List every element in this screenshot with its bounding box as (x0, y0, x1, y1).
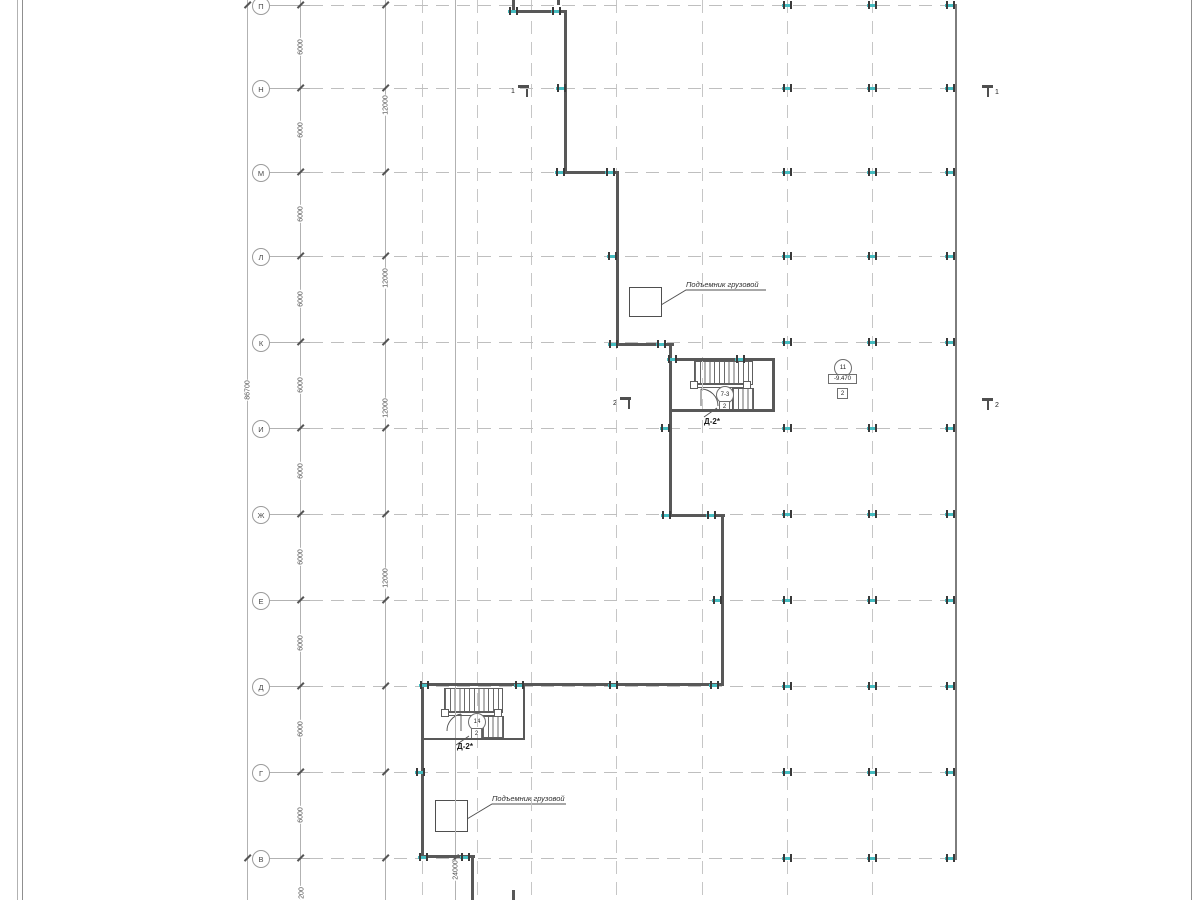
stair-upper-post (690, 381, 698, 389)
axis-tick (783, 338, 785, 346)
dimension-label-6000: 6000 (298, 205, 305, 223)
wall-tick (662, 511, 664, 519)
axis-bubble: Е (252, 592, 270, 610)
axis-tick (875, 682, 877, 690)
axis-tick (790, 338, 792, 346)
wall-tick (710, 681, 712, 689)
grid-axis-line (310, 428, 956, 429)
axis-tick (946, 854, 948, 862)
hoist-lower-leader (467, 804, 566, 819)
wall-segment (669, 358, 775, 361)
stair-upper-landing-edge (692, 383, 747, 384)
wall-tick (608, 252, 610, 260)
wall-tick (509, 7, 511, 15)
wall-tick (419, 853, 421, 861)
axis-bubble: В (252, 850, 270, 868)
axis-bubble: К (252, 334, 270, 352)
dimension-label-24000: 24000 (453, 859, 460, 880)
dimension-label-total: 86700 (245, 379, 252, 400)
wall-segment (557, 0, 560, 5)
axis-tick (868, 854, 870, 862)
axis-bubble: Ж (252, 506, 270, 524)
axis-tick (875, 168, 877, 176)
wall-tick (516, 7, 518, 15)
axis-tick (783, 168, 785, 176)
axis-tick (868, 768, 870, 776)
section-flag-stem (987, 85, 989, 97)
wall-segment (421, 683, 724, 686)
hoist-lower-label: Подъемник грузовой (492, 794, 565, 803)
wall-tick (416, 768, 418, 776)
floor-plan-canvas: 7-3 2 Д-2* 14 2 Д-2* Подъемник грузовой … (0, 0, 1200, 900)
grid-axis-line (310, 172, 956, 173)
stair-lower-landing-edge (444, 711, 497, 712)
axis-lead-line (268, 514, 310, 515)
stair-lower-post (494, 709, 502, 717)
stair-lower-label: Д-2* (457, 742, 473, 751)
dimension-label-12000: 12000 (383, 94, 390, 115)
dimension-label-partial: 200 (299, 886, 306, 900)
wall-tick (713, 596, 715, 604)
axis-tick (946, 424, 948, 432)
dimension-label-6000: 6000 (298, 634, 305, 652)
wall-tick (556, 168, 558, 176)
wall-segment (564, 10, 567, 174)
grid-axis-line (310, 686, 956, 687)
grid-line-vertical (787, 0, 788, 900)
grid-line-vertical (702, 0, 703, 900)
wall-tick (675, 355, 677, 363)
sheet-border (22, 0, 23, 900)
axis-tick (953, 338, 955, 346)
axis-tick (953, 596, 955, 604)
stair-upper-post (743, 381, 751, 389)
axis-bubble: И (252, 420, 270, 438)
section-1-left-label: 1 (511, 88, 515, 95)
wall-segment (669, 514, 725, 517)
axis-tick (946, 1, 948, 9)
axis-tick (875, 84, 877, 92)
axis-lead-line (268, 428, 310, 429)
wall-tick (720, 596, 722, 604)
wall-tick (616, 681, 618, 689)
stair-upper-label: Д-2* (704, 417, 720, 426)
dimension-label-6000: 6000 (298, 376, 305, 394)
axis-tick (790, 768, 792, 776)
axis-tick (783, 84, 785, 92)
grid-line-vertical (872, 0, 873, 900)
axis-tick (875, 768, 877, 776)
axis-tick (953, 682, 955, 690)
wall-tick (743, 355, 745, 363)
wall-tick (606, 168, 608, 176)
wall-tick (661, 424, 663, 432)
axis-lead-line (268, 5, 310, 6)
axis-tick (790, 84, 792, 92)
axis-tick (868, 1, 870, 9)
dimension-label-12000: 12000 (383, 567, 390, 588)
wall-tick (668, 355, 670, 363)
axis-tick (790, 252, 792, 260)
axis-tick (868, 168, 870, 176)
axis-lead-line (268, 342, 310, 343)
axis-tick (953, 252, 955, 260)
axis-tick (875, 510, 877, 518)
grid-line-vertical (531, 0, 532, 900)
wall-tick (609, 681, 611, 689)
axis-lead-line (268, 686, 310, 687)
axis-tick (946, 84, 948, 92)
wall-tick (615, 252, 617, 260)
axis-tick (875, 1, 877, 9)
grid-axis-line (310, 256, 956, 257)
section-flag-stem (526, 85, 528, 97)
wall-segment (523, 686, 525, 740)
dimension-label-6000: 6000 (298, 462, 305, 480)
grid-axis-line (310, 88, 956, 89)
dimension-label-6000: 6000 (298, 290, 305, 308)
axis-tick (868, 84, 870, 92)
wall-tick (609, 340, 611, 348)
axis-tick (790, 596, 792, 604)
axis-tick (946, 510, 948, 518)
wall-tick (468, 853, 470, 861)
axis-tick (783, 252, 785, 260)
column-square-marker: 2 (837, 388, 848, 399)
wall-tick (461, 853, 463, 861)
wall-tick (669, 511, 671, 519)
dimension-label-6000: 6000 (298, 38, 305, 56)
axis-tick (790, 168, 792, 176)
wall-segment (512, 890, 515, 900)
section-1-right-label: 1 (995, 89, 999, 96)
grid-line-vertical (616, 0, 617, 900)
wall-tick (664, 340, 666, 348)
dimension-line (247, 0, 248, 900)
axis-bubble: Д (252, 678, 270, 696)
axis-tick (783, 682, 785, 690)
dimension-line (455, 0, 456, 900)
axis-tick (875, 854, 877, 862)
axis-tick (790, 1, 792, 9)
axis-tick (953, 168, 955, 176)
wall-tick (423, 768, 425, 776)
wall-tick (613, 168, 615, 176)
wall-segment (471, 855, 474, 900)
axis-tick (783, 424, 785, 432)
section-flag-stem (628, 397, 630, 409)
elevation-marker: -9.470 (828, 374, 857, 384)
axis-tick (875, 424, 877, 432)
hoist-upper-label: Подъемник грузовой (686, 280, 759, 289)
axis-tick (946, 252, 948, 260)
axis-tick (783, 1, 785, 9)
wall-tick (714, 511, 716, 519)
door-swing-lower (447, 714, 461, 731)
grid-axis-line (310, 5, 956, 6)
axis-tick (946, 596, 948, 604)
axis-tick (868, 252, 870, 260)
axis-tick (783, 768, 785, 776)
axis-tick (868, 682, 870, 690)
grid-line-vertical (477, 0, 478, 900)
axis-lead-line (268, 858, 310, 859)
wall-tick (563, 168, 565, 176)
axis-tick (875, 596, 877, 604)
grid-axis-line (310, 600, 956, 601)
axis-tick (946, 682, 948, 690)
section-flag-stem (987, 398, 989, 410)
axis-lead-line (268, 172, 310, 173)
wall-tick (420, 681, 422, 689)
grid-axis-line (310, 858, 956, 859)
wall-tick (427, 681, 429, 689)
axis-bubble: Л (252, 248, 270, 266)
hoist-upper-leader (661, 290, 766, 305)
section-2-right-label: 2 (995, 402, 999, 409)
axis-tick (783, 596, 785, 604)
axis-lead-line (268, 88, 310, 89)
hoist-upper-box (629, 287, 662, 317)
wall-tick (616, 340, 618, 348)
wall-tick (736, 355, 738, 363)
wall-tick (557, 84, 559, 92)
wall-tick (707, 511, 709, 519)
axis-tick (953, 854, 955, 862)
axis-tick (953, 84, 955, 92)
axis-tick (953, 1, 955, 9)
dimension-label-6000: 6000 (298, 548, 305, 566)
axis-lead-line (268, 600, 310, 601)
wall-segment (772, 358, 775, 412)
wall-segment (669, 409, 775, 412)
dimension-line (385, 0, 386, 900)
axis-tick (790, 682, 792, 690)
wall-tick (426, 853, 428, 861)
axis-tick (875, 338, 877, 346)
axis-tick (875, 252, 877, 260)
dimension-label-6000: 6000 (298, 720, 305, 738)
dimension-label-12000: 12000 (383, 397, 390, 418)
wall-tick (657, 340, 659, 348)
wall-tick (552, 7, 554, 15)
building-right-edge (955, 4, 957, 860)
annotation-lines (0, 0, 1200, 900)
axis-tick (790, 424, 792, 432)
axis-tick (946, 768, 948, 776)
axis-tick (868, 424, 870, 432)
axis-tick (953, 424, 955, 432)
wall-tick (717, 681, 719, 689)
stair-lower-post (441, 709, 449, 717)
stair-upper-lower-flight (732, 388, 754, 411)
axis-tick (783, 854, 785, 862)
dimension-label-6000: 6000 (298, 806, 305, 824)
hoist-lower-box (435, 800, 468, 832)
dimension-label-6000: 6000 (298, 121, 305, 139)
dimension-label-12000: 12000 (383, 267, 390, 288)
axis-tick (868, 596, 870, 604)
axis-tick (783, 510, 785, 518)
axis-tick (953, 768, 955, 776)
wall-tick (522, 681, 524, 689)
axis-tick (946, 338, 948, 346)
grid-axis-line (310, 772, 956, 773)
axis-lead-line (268, 772, 310, 773)
axis-bubble: М (252, 164, 270, 182)
wall-tick (668, 424, 670, 432)
axis-lead-line (268, 256, 310, 257)
axis-tick (790, 510, 792, 518)
axis-bubble: Н (252, 80, 270, 98)
wall-tick (515, 681, 517, 689)
wall-tick (559, 7, 561, 15)
wall-tick (564, 84, 566, 92)
axis-bubble: Г (252, 764, 270, 782)
sheet-border (17, 0, 18, 900)
grid-axis-line (310, 514, 956, 515)
sheet-border (1191, 0, 1192, 900)
wall-segment (421, 738, 525, 740)
axis-tick (946, 168, 948, 176)
axis-tick (868, 338, 870, 346)
axis-tick (868, 510, 870, 518)
axis-tick (790, 854, 792, 862)
axis-tick (953, 510, 955, 518)
